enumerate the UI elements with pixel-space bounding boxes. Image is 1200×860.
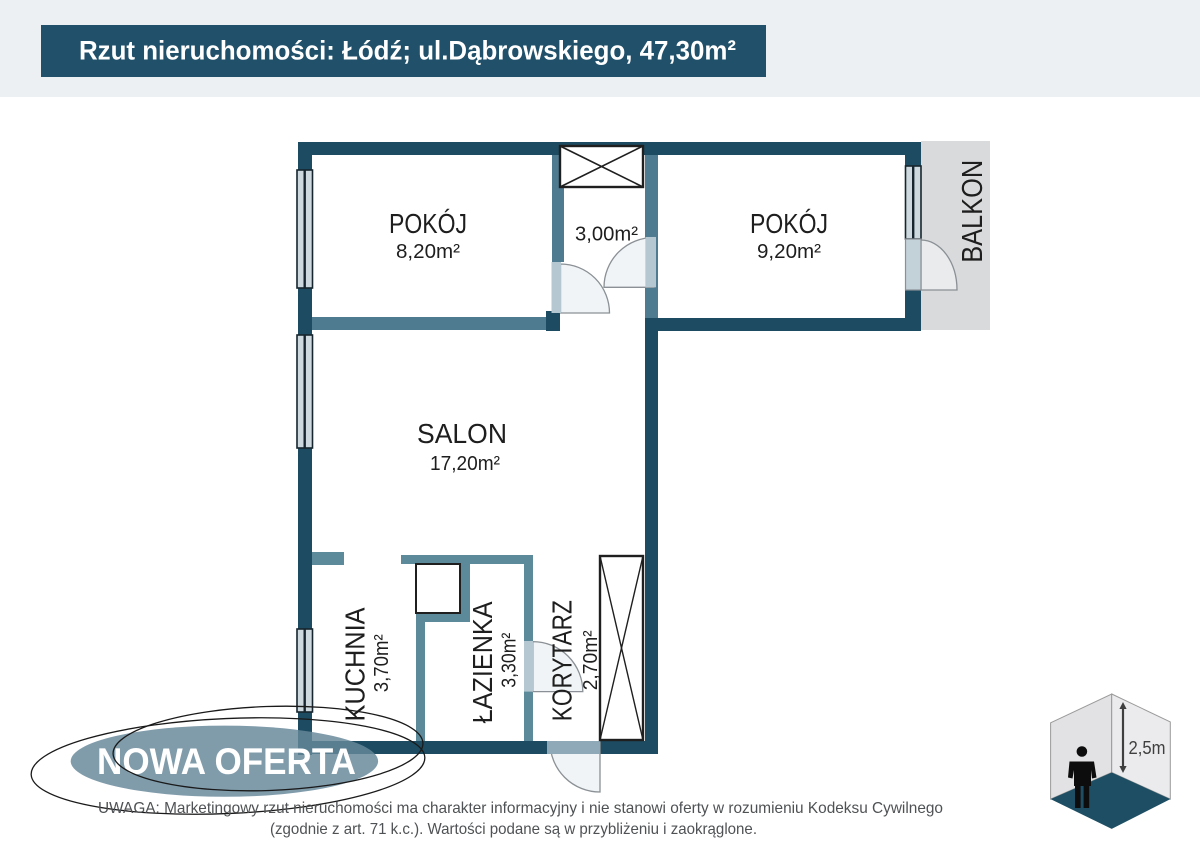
svg-text:17,20m²: 17,20m²: [430, 453, 500, 475]
svg-text:3,70m²: 3,70m²: [371, 634, 393, 692]
svg-text:POKÓJ: POKÓJ: [750, 208, 828, 239]
svg-text:3,30m²: 3,30m²: [499, 632, 521, 687]
svg-text:ŁAZIENKA: ŁAZIENKA: [467, 601, 498, 723]
svg-text:BALKON: BALKON: [957, 160, 989, 263]
svg-text:SALON: SALON: [417, 418, 507, 449]
svg-text:2,70m²: 2,70m²: [580, 630, 602, 690]
svg-text:Rzut nieruchomości: Łódź; ul.D: Rzut nieruchomości: Łódź; ul.Dąbrowskieg…: [79, 36, 736, 66]
svg-text:KORYTARZ: KORYTARZ: [547, 600, 578, 721]
svg-text:NOWA OFERTA: NOWA OFERTA: [97, 741, 356, 782]
svg-text:KUCHNIA: KUCHNIA: [340, 607, 371, 721]
svg-text:POKÓJ: POKÓJ: [389, 208, 467, 239]
svg-text:3,00m²: 3,00m²: [575, 224, 638, 246]
svg-text:9,20m²: 9,20m²: [757, 241, 821, 263]
svg-text:UWAGA: Marketingowy rzut nieru: UWAGA: Marketingowy rzut nieruchomości m…: [98, 800, 943, 817]
svg-text:2,5m: 2,5m: [1129, 738, 1166, 758]
svg-text:(zgodnie z art. 71 k.c.). Wart: (zgodnie z art. 71 k.c.). Wartości podan…: [270, 821, 757, 838]
svg-text:8,20m²: 8,20m²: [396, 241, 460, 263]
